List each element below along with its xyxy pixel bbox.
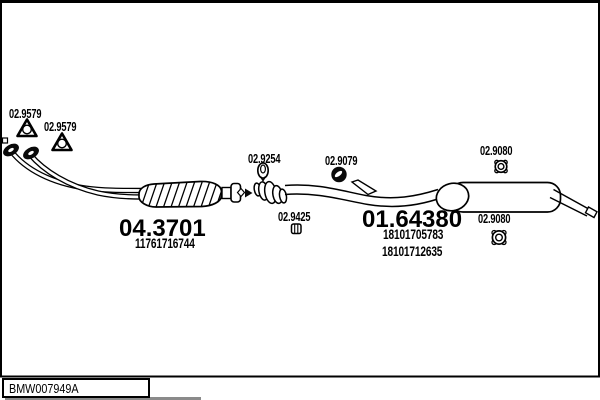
callout-rubber-mount: 02.9079 [325,155,357,168]
catalytic-converter-drawing [139,178,241,210]
diagram-line-art [0,0,600,400]
drawing-id-text: BMW007949A [9,381,79,396]
flange-gasket-1-drawing [18,120,37,137]
callout-grommet-top: 02.9080 [480,145,512,158]
callout-seal-ring: 02.9254 [248,153,280,166]
corner-marker [3,138,8,143]
tailpipe-tip [586,207,598,218]
callout-grommet-bottom: 02.9080 [478,213,510,226]
flange-gasket-2-drawing [53,134,72,151]
rear-muffler-oem-2: 18101712635 [382,245,442,259]
mount-bracket [352,180,376,195]
exhaust-parts-diagram: 02.9579 02.9579 02.9254 02.9079 02.9425 … [0,0,600,400]
callout-front-gasket-2: 02.9579 [44,121,76,134]
flow-arrow-icon [245,189,253,198]
seal-ring-drawing [258,163,268,181]
grommet-bottom-drawing [492,231,506,245]
callout-front-gasket-1: 02.9579 [9,108,41,121]
drawing-id-box: BMW007949A [2,378,150,398]
flex-joint-drawing [253,181,287,205]
clamp-drawing [292,224,302,234]
outlet-neck [222,188,231,199]
grommet-top-drawing [495,160,507,172]
catalytic-converter-oem: 11761716744 [135,237,195,251]
callout-clamp: 02.9425 [278,211,310,224]
rear-muffler-oem-1: 18101705783 [383,228,443,242]
rubber-mount-drawing [331,167,346,182]
